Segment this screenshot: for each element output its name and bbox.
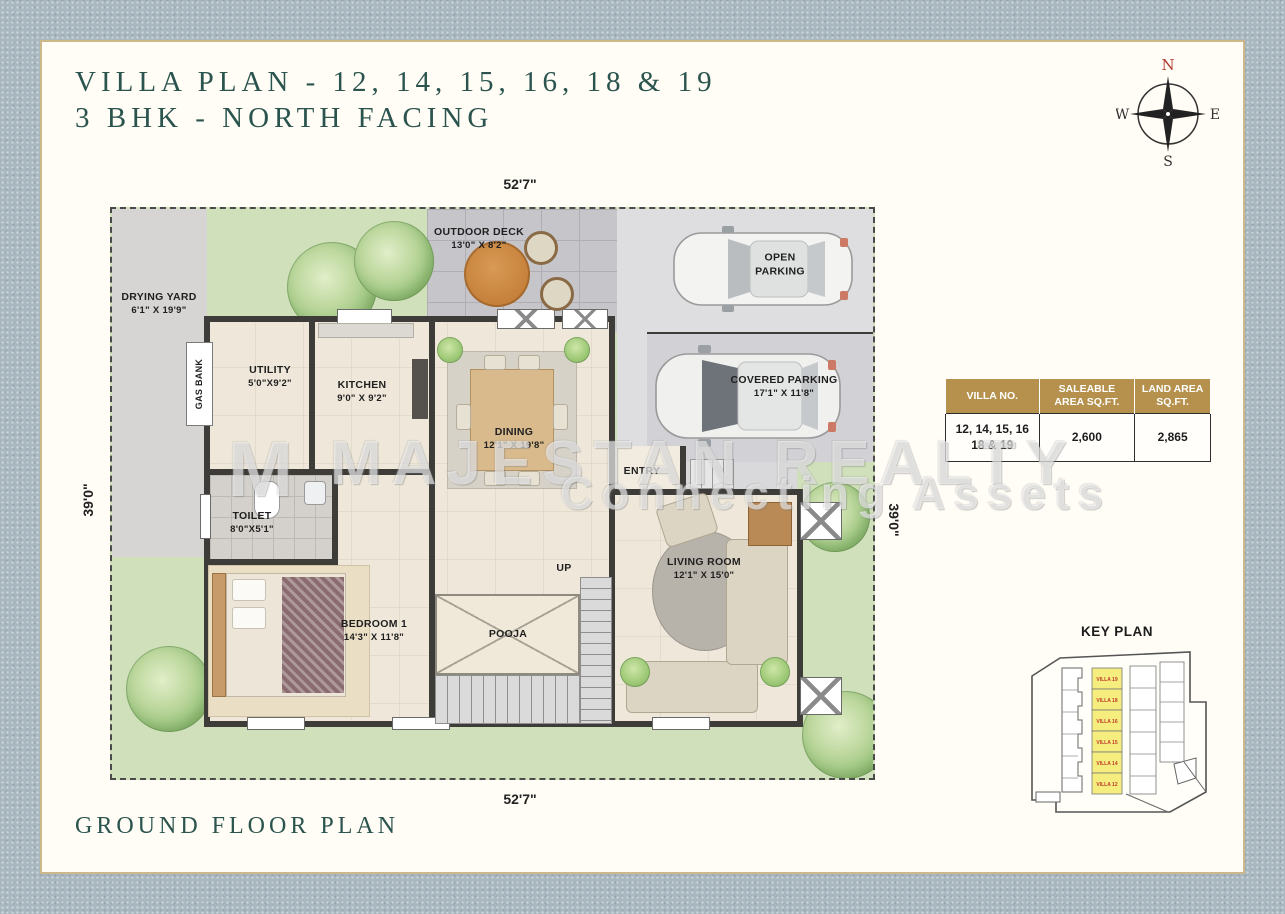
- area-table: VILLA NO. SALEABLE AREA SQ.FT. LAND AREA…: [945, 378, 1211, 462]
- dimension-top: 52'7": [503, 176, 536, 192]
- compass-south-label: S: [1163, 154, 1173, 168]
- dining-chair: [456, 404, 471, 430]
- staircase-up: [580, 577, 612, 724]
- dimension-left: 39'0": [80, 483, 96, 516]
- area-table-header-saleable: SALEABLE AREA SQ.FT.: [1039, 379, 1135, 414]
- key-plan-villa-label: VILLA 16: [1096, 719, 1117, 725]
- title-line-1: VILLA PLAN - 12, 14, 15, 16, 18 & 19: [75, 64, 717, 100]
- window: [562, 309, 608, 329]
- compass-north-label: N: [1161, 58, 1174, 74]
- room-size-toilet: 8'0"X5'1": [230, 524, 274, 536]
- kitchen-counter: [318, 323, 414, 338]
- room-label-open-parking: OPEN PARKING: [745, 251, 815, 278]
- porch-window: [800, 502, 842, 540]
- pillow: [232, 607, 266, 629]
- area-table-cell-villa-no: 12, 14, 15, 16 18 & 19: [946, 414, 1040, 461]
- compass-east-label: E: [1210, 107, 1220, 123]
- page-background: VILLA PLAN - 12, 14, 15, 16, 18 & 19 3 B…: [0, 0, 1285, 914]
- room-size-outdoor-deck: 13'0" X 8'2": [434, 240, 524, 252]
- area-table-header-villa-no: VILLA NO.: [946, 379, 1040, 414]
- side-table: [748, 502, 792, 546]
- dining-chair: [518, 471, 540, 486]
- pillow: [232, 579, 266, 601]
- room-label-gas-bank: GAS BANK: [194, 359, 206, 409]
- dining-chair: [518, 355, 540, 370]
- room-label-dining: DINING: [484, 426, 545, 440]
- window: [200, 494, 211, 539]
- room-size-living-room: 12'1" X 15'0": [667, 570, 741, 582]
- compass-west-label: W: [1116, 107, 1130, 123]
- title-line-2: 3 BHK - NORTH FACING: [75, 100, 717, 136]
- area-table-header-land: LAND AREA SQ.FT.: [1135, 379, 1211, 414]
- key-plan-villa-label: VILLA 19: [1096, 677, 1117, 683]
- page-title: VILLA PLAN - 12, 14, 15, 16, 18 & 19 3 B…: [75, 64, 717, 137]
- room-label-bedroom1: BEDROOM 1: [341, 618, 407, 632]
- area-table-cell-land: 2,865: [1135, 414, 1211, 461]
- window: [652, 717, 710, 730]
- bed-quilt: [282, 577, 344, 693]
- dining-chair: [484, 471, 506, 486]
- key-plan-villa-label: VILLA 14: [1096, 761, 1117, 767]
- key-plan-villa-label: VILLA 15: [1096, 740, 1117, 746]
- dining-table: [470, 369, 554, 471]
- wall: [680, 446, 686, 495]
- plant-icon: [437, 337, 463, 363]
- window: [497, 309, 555, 329]
- window: [247, 717, 305, 730]
- dining-chair: [553, 404, 568, 430]
- room-label-drying-yard: DRYING YARD: [121, 291, 196, 305]
- wall: [309, 316, 315, 475]
- room-label-utility: UTILITY: [248, 364, 292, 378]
- tree-icon: [126, 646, 212, 732]
- key-plan-title: KEY PLAN: [1081, 624, 1153, 639]
- table-row: 12, 14, 15, 16 18 & 19 2,600 2,865: [946, 414, 1211, 461]
- room-size-bedroom1: 14'3" X 11'8": [341, 632, 407, 644]
- bed-headboard: [212, 573, 226, 697]
- tree-icon: [354, 221, 434, 301]
- room-label-kitchen: KITCHEN: [337, 379, 387, 393]
- dimension-right: 39'0": [886, 503, 902, 536]
- ground-floor-plan-label: GROUND FLOOR PLAN: [75, 813, 399, 840]
- room-size-covered-parking: 17'1" X 11'8": [731, 388, 838, 400]
- room-label-outdoor-deck: OUTDOOR DECK: [434, 226, 524, 240]
- room-label-living-room: LIVING ROOM: [667, 556, 741, 570]
- porch-window: [800, 677, 842, 715]
- wall: [332, 469, 338, 565]
- dining-chair: [484, 355, 506, 370]
- compass-rose-icon: N E S W: [1116, 58, 1220, 168]
- kitchen-stove: [412, 359, 428, 419]
- toilet-sink: [304, 481, 326, 505]
- deck-chair: [524, 231, 558, 265]
- room-label-pooja: POOJA: [489, 628, 527, 642]
- plant-icon: [564, 337, 590, 363]
- room-label-up: UP: [556, 562, 571, 576]
- key-plan-map: VILLA 19 VILLA 18 VILLA 16 VILLA 15 VILL…: [1018, 644, 1218, 816]
- room-label-toilet: TOILET: [230, 510, 274, 524]
- room-label-entry: ENTRY: [624, 465, 661, 479]
- room-label-covered-parking: COVERED PARKING: [731, 374, 838, 388]
- plant-icon: [620, 657, 650, 687]
- staircase-lower-flight: [435, 675, 580, 724]
- room-size-kitchen: 9'0" X 9'2": [337, 393, 387, 405]
- entry-steps: [690, 459, 734, 489]
- key-plan-villa-label: VILLA 18: [1096, 698, 1117, 704]
- room-size-dining: 12'1" X 19'8": [484, 440, 545, 452]
- dimension-bottom: 52'7": [503, 791, 536, 807]
- floor-plan: DRYING YARD 6'1" X 19'9" GAS BANK UTILIT…: [110, 207, 875, 780]
- key-plan-villa-label: VILLA 12: [1096, 782, 1117, 788]
- room-size-drying-yard: 6'1" X 19'9": [121, 305, 196, 317]
- deck-chair: [540, 277, 574, 311]
- plant-icon: [760, 657, 790, 687]
- wall: [204, 469, 435, 475]
- room-size-utility: 5'0"X9'2": [248, 378, 292, 390]
- area-table-cell-saleable: 2,600: [1039, 414, 1135, 461]
